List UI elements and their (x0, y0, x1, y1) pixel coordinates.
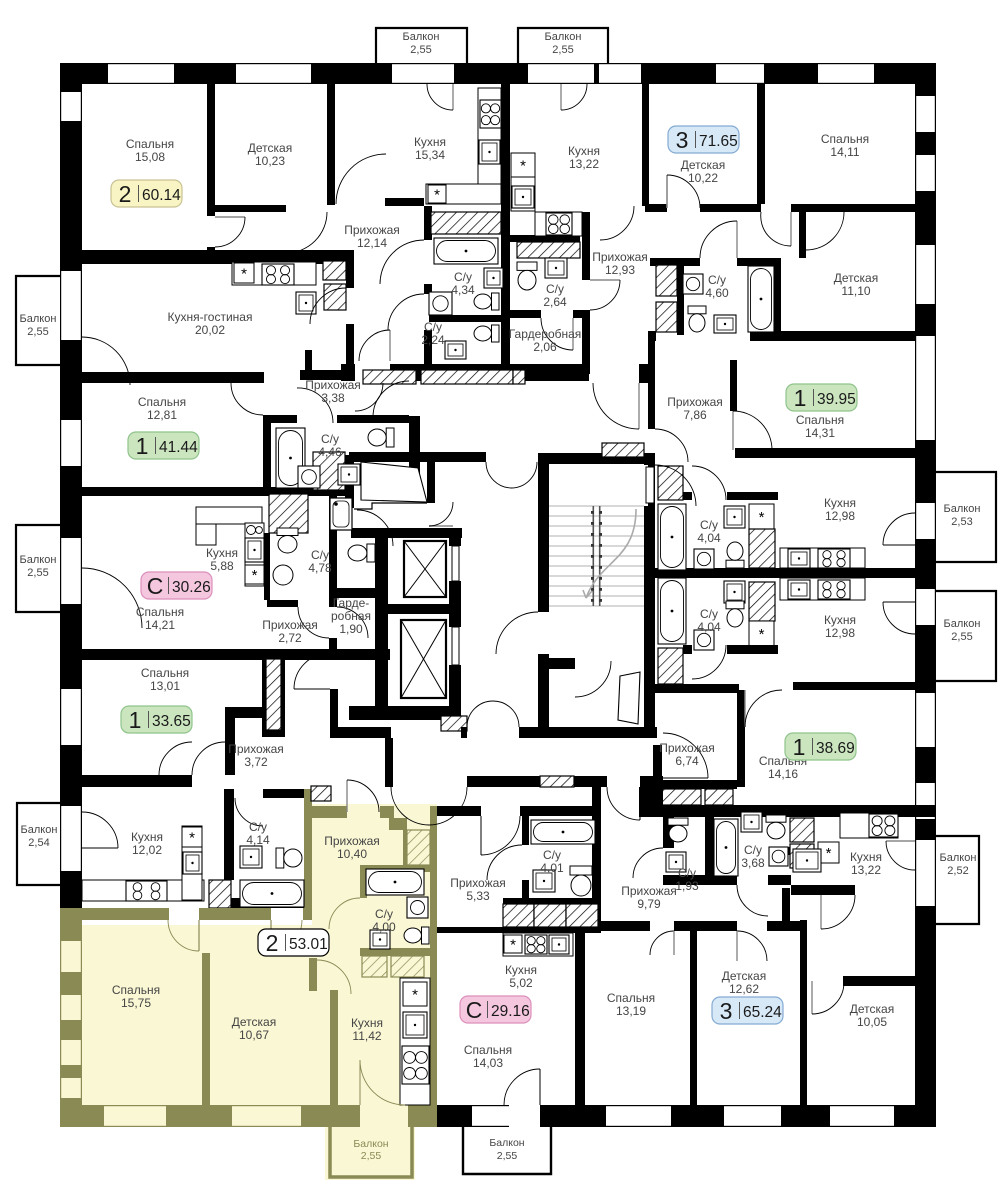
svg-text:5,02: 5,02 (509, 976, 533, 990)
svg-text:робная: робная (331, 609, 371, 623)
svg-text:65.24: 65.24 (743, 1004, 782, 1021)
svg-text:*: * (826, 845, 832, 862)
svg-text:4,04: 4,04 (697, 531, 721, 545)
svg-text:С: С (466, 997, 483, 1023)
svg-text:2,24: 2,24 (421, 333, 445, 347)
svg-text:14,03: 14,03 (473, 1056, 503, 1070)
svg-text:Спальня: Спальня (112, 983, 160, 997)
svg-text:*: * (189, 830, 195, 847)
svg-text:12,81: 12,81 (147, 408, 177, 422)
svg-text:*: * (434, 187, 440, 204)
svg-text:Кухня: Кухня (824, 496, 856, 510)
svg-text:12,98: 12,98 (825, 509, 855, 523)
svg-text:Кухня: Кухня (206, 546, 238, 560)
svg-text:С/у: С/у (321, 432, 339, 446)
svg-text:Гарде-: Гарде- (333, 596, 370, 610)
svg-text:С/у: С/у (375, 907, 393, 921)
svg-text:7,86: 7,86 (683, 408, 707, 422)
svg-text:*: * (412, 987, 418, 1004)
svg-text:Прихожая: Прихожая (659, 741, 715, 755)
svg-text:Кухня: Кухня (351, 1016, 383, 1030)
svg-text:Балкон: Балкон (21, 824, 58, 836)
svg-text:Кухня: Кухня (505, 963, 537, 977)
svg-text:Спальня: Спальня (464, 1043, 512, 1057)
svg-text:С/у: С/у (311, 548, 329, 562)
svg-text:2,72: 2,72 (278, 631, 302, 645)
svg-text:4,00: 4,00 (372, 920, 396, 934)
svg-text:Спальня: Спальня (796, 413, 844, 427)
svg-text:10,23: 10,23 (255, 154, 285, 168)
svg-text:2,55: 2,55 (410, 44, 431, 56)
svg-text:Детская: Детская (248, 141, 292, 155)
svg-text:10,67: 10,67 (239, 1028, 269, 1042)
svg-text:С/у: С/у (744, 843, 762, 857)
svg-text:3,68: 3,68 (741, 856, 765, 870)
svg-text:2,52: 2,52 (947, 865, 968, 877)
svg-text:Прихожая: Прихожая (344, 223, 400, 237)
svg-text:С/у: С/у (678, 866, 696, 880)
svg-text:30.26: 30.26 (172, 579, 211, 596)
svg-text:10,05: 10,05 (857, 1015, 887, 1029)
svg-text:Кухня: Кухня (824, 613, 856, 627)
svg-text:15,75: 15,75 (121, 996, 151, 1010)
svg-text:2,55: 2,55 (27, 326, 48, 338)
svg-text:Прихожая: Прихожая (592, 250, 648, 264)
svg-text:4,60: 4,60 (705, 286, 729, 300)
svg-text:Прихожая: Прихожая (305, 378, 361, 392)
svg-text:Детская: Детская (232, 1015, 276, 1029)
svg-text:Балкон: Балкон (20, 554, 57, 566)
svg-text:Спальня: Спальня (138, 395, 186, 409)
svg-text:Балкон: Балкон (403, 31, 440, 43)
svg-text:1,90: 1,90 (339, 622, 363, 636)
svg-text:10,22: 10,22 (688, 171, 718, 185)
svg-text:60.14: 60.14 (142, 187, 181, 204)
svg-text:*: * (510, 937, 516, 954)
svg-text:11,42: 11,42 (352, 1029, 381, 1043)
svg-text:33.65: 33.65 (152, 713, 191, 730)
svg-text:6,74: 6,74 (675, 754, 699, 768)
svg-text:2,55: 2,55 (361, 1150, 382, 1162)
svg-text:*: * (520, 158, 526, 175)
svg-text:*: * (252, 567, 258, 584)
svg-text:Детская: Детская (681, 158, 725, 172)
svg-text:38.69: 38.69 (816, 740, 855, 757)
svg-text:13,19: 13,19 (616, 1004, 646, 1018)
svg-text:С/у: С/у (249, 820, 267, 834)
svg-text:12,98: 12,98 (825, 626, 855, 640)
svg-text:Детская: Детская (722, 969, 766, 983)
svg-text:Прихожая: Прихожая (667, 395, 723, 409)
svg-text:Балкон: Балкон (944, 503, 981, 515)
svg-text:Спальня: Спальня (126, 137, 174, 151)
svg-text:5,33: 5,33 (466, 889, 490, 903)
svg-text:Балкон: Балкон (944, 618, 981, 630)
svg-text:Спальня: Спальня (136, 605, 184, 619)
svg-text:Балкон: Балкон (353, 1138, 388, 1150)
svg-text:13,22: 13,22 (851, 863, 881, 877)
svg-text:13,22: 13,22 (569, 157, 599, 171)
svg-text:Спальня: Спальня (141, 666, 189, 680)
svg-text:71.65: 71.65 (699, 133, 738, 150)
svg-text:Прихожая: Прихожая (324, 834, 380, 848)
svg-text:2,54: 2,54 (28, 837, 49, 849)
svg-text:Прихожая: Прихожая (262, 618, 318, 632)
svg-text:Гардеробная: Гардеробная (509, 327, 582, 341)
svg-text:3,38: 3,38 (321, 391, 345, 405)
svg-text:Балкон: Балкон (489, 1137, 524, 1149)
svg-text:Детская: Детская (834, 271, 878, 285)
svg-text:15,08: 15,08 (135, 150, 165, 164)
svg-text:2,55: 2,55 (497, 1150, 518, 1162)
svg-text:14,16: 14,16 (768, 767, 798, 781)
svg-text:4,01: 4,01 (540, 861, 564, 875)
svg-text:Кухня: Кухня (131, 830, 163, 844)
svg-text:15,34: 15,34 (415, 148, 445, 162)
svg-text:Прихожая: Прихожая (228, 742, 284, 756)
svg-text:39.95: 39.95 (817, 391, 856, 408)
svg-text:2: 2 (119, 181, 132, 207)
svg-text:1: 1 (136, 433, 149, 459)
svg-text:4,04: 4,04 (697, 620, 721, 634)
svg-text:10,40: 10,40 (337, 847, 367, 861)
svg-text:29.16: 29.16 (491, 1003, 530, 1020)
svg-text:Балкон: Балкон (20, 313, 57, 325)
svg-text:С/у: С/у (708, 273, 726, 287)
svg-text:11,10: 11,10 (841, 284, 870, 298)
svg-text:С/у: С/у (454, 270, 472, 284)
svg-text:2: 2 (266, 930, 279, 956)
svg-text:9,79: 9,79 (637, 897, 661, 911)
svg-text:12,93: 12,93 (605, 263, 635, 277)
svg-text:Спальня: Спальня (607, 991, 655, 1005)
svg-text:14,31: 14,31 (805, 426, 835, 440)
svg-text:12,14: 12,14 (357, 236, 387, 250)
svg-text:Спальня: Спальня (821, 132, 869, 146)
svg-text:5,88: 5,88 (210, 559, 234, 573)
svg-text:41.44: 41.44 (159, 439, 198, 456)
svg-text:2,55: 2,55 (951, 631, 972, 643)
svg-text:14,11: 14,11 (830, 145, 859, 159)
svg-text:3: 3 (720, 998, 733, 1024)
svg-text:2,55: 2,55 (27, 567, 48, 579)
svg-text:12,02: 12,02 (132, 843, 162, 857)
svg-text:Балкон: Балкон (940, 852, 977, 864)
svg-text:53.01: 53.01 (289, 936, 328, 953)
svg-text:4,14: 4,14 (246, 833, 270, 847)
svg-text:Балкон: Балкон (545, 31, 582, 43)
svg-text:13,01: 13,01 (150, 679, 180, 693)
svg-text:С/у: С/у (700, 518, 718, 532)
svg-text:Кухня: Кухня (568, 144, 600, 158)
svg-text:С/у: С/у (543, 848, 561, 862)
svg-text:*: * (759, 509, 765, 526)
svg-text:2,64: 2,64 (543, 295, 567, 309)
svg-text:*: * (241, 266, 247, 283)
svg-text:14,21: 14,21 (145, 618, 175, 632)
svg-text:2,53: 2,53 (951, 516, 972, 528)
svg-text:1,93: 1,93 (675, 879, 699, 893)
svg-text:*: * (759, 626, 765, 643)
svg-text:4,46: 4,46 (318, 445, 342, 459)
svg-text:Кухня: Кухня (850, 850, 882, 864)
svg-text:3: 3 (676, 127, 689, 153)
svg-text:С: С (147, 573, 164, 599)
svg-text:4,34: 4,34 (451, 283, 475, 297)
svg-text:1: 1 (794, 385, 807, 411)
svg-text:12,62: 12,62 (729, 982, 759, 996)
svg-text:3,72: 3,72 (244, 755, 268, 769)
svg-text:2,55: 2,55 (552, 44, 573, 56)
svg-text:Прихожая: Прихожая (450, 876, 506, 890)
svg-text:С/у: С/у (424, 320, 442, 334)
svg-text:Кухня-гостиная: Кухня-гостиная (168, 310, 253, 324)
svg-text:Кухня: Кухня (414, 135, 446, 149)
svg-text:С/у: С/у (700, 607, 718, 621)
svg-text:1: 1 (129, 707, 142, 733)
svg-text:2,06: 2,06 (533, 340, 557, 354)
svg-text:1: 1 (793, 734, 806, 760)
svg-text:4,78: 4,78 (308, 561, 332, 575)
svg-text:Прихожая: Прихожая (621, 884, 677, 898)
svg-text:С/у: С/у (546, 282, 564, 296)
svg-text:Детская: Детская (850, 1002, 894, 1016)
svg-text:20,02: 20,02 (195, 323, 225, 337)
